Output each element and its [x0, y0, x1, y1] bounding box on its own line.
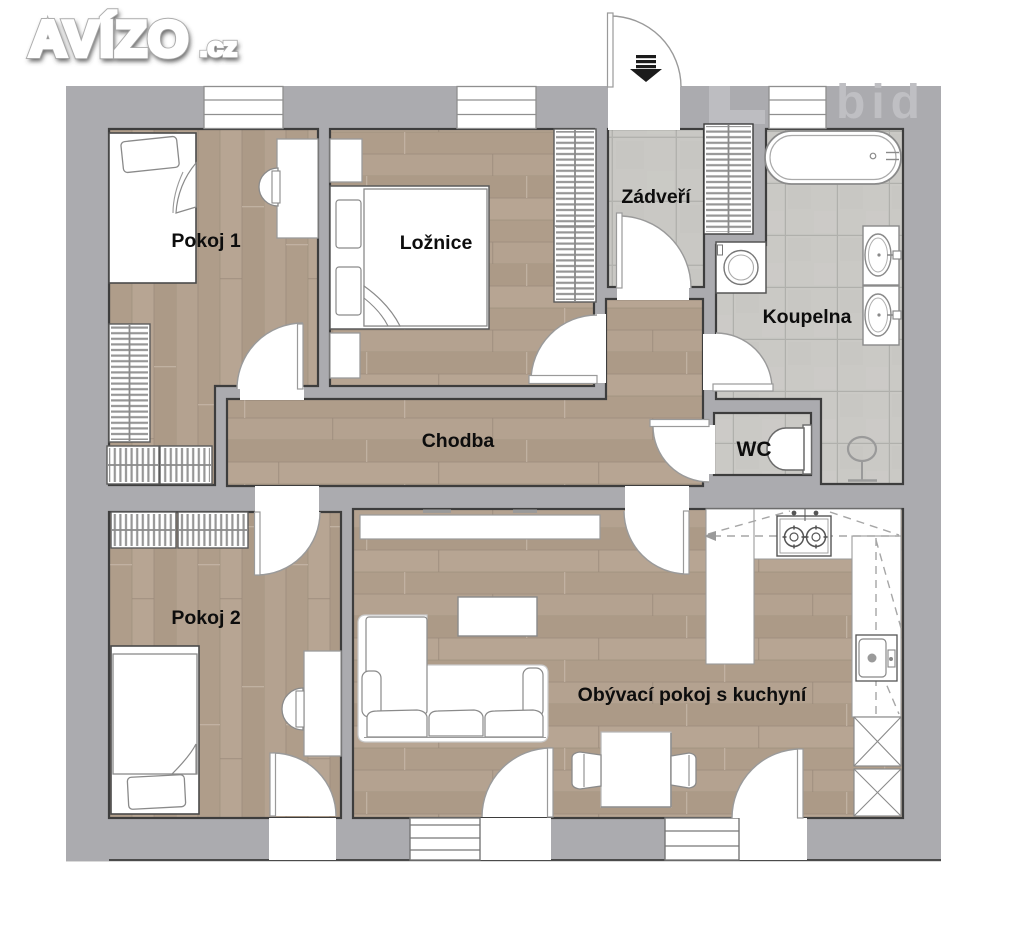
svg-text:AVÍZO: AVÍZO	[29, 11, 189, 67]
svg-text:Chodba: Chodba	[422, 430, 495, 452]
svg-text:Koupelna: Koupelna	[763, 306, 852, 328]
svg-text:Ložnice: Ložnice	[400, 232, 473, 254]
svg-text:.cz: .cz	[200, 31, 237, 61]
svg-text:WC: WC	[737, 438, 772, 461]
svg-text:Pokoj 1: Pokoj 1	[171, 230, 241, 252]
svg-text:Pokoj 2: Pokoj 2	[171, 607, 241, 629]
svg-text:Obývací pokoj s kuchyní: Obývací pokoj s kuchyní	[578, 684, 807, 706]
svg-text:bid: bid	[836, 76, 926, 129]
svg-text:Zádveří: Zádveří	[621, 186, 691, 208]
